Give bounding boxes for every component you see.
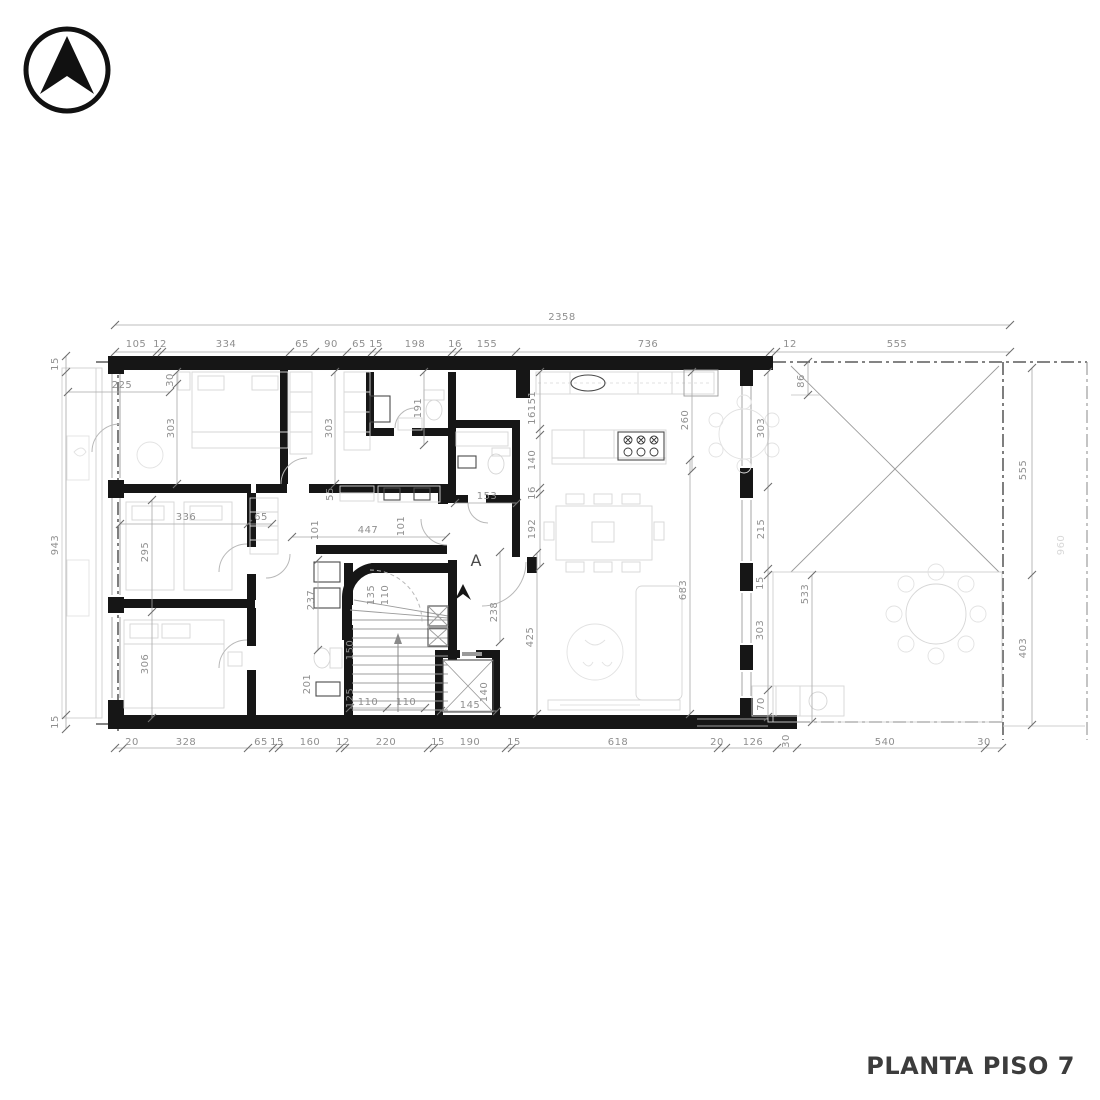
dim-label: 215 [756,519,767,540]
dim-label: 192 [527,519,538,540]
dim-label: 260 [680,410,691,431]
dim-label: 328 [176,737,197,748]
dim-label: 12 [153,339,167,350]
dim-label: 15 [755,576,766,590]
left-windows [112,374,120,698]
dim-label: 12 [336,737,350,748]
dim-label: 533 [800,584,811,605]
dim-label: 295 [140,542,151,563]
floor-plan: A [62,356,1087,740]
dim-label: 238 [489,602,500,623]
dim-label: 201 [302,674,313,695]
dim-label: 110 [358,697,379,708]
dining-table [544,494,664,572]
dim-label: 126 [743,737,764,748]
dim-label: 191 [413,398,424,419]
dim-label: 86 [796,374,807,388]
dim-label: 403 [1018,638,1029,659]
dim-label: 20 [125,737,139,748]
dim-label: 15 [369,339,383,350]
dim-label: 150 [345,640,356,661]
dim-label: 90 [324,339,338,350]
dim-label: 736 [638,339,659,350]
dim-label: 110 [380,585,391,606]
dim-label: 65 [254,512,268,523]
dim-label: 65 [352,339,366,350]
plant-icon [74,448,86,456]
dim-label: 153 [477,491,498,502]
dim-label: 140 [479,682,490,703]
dim-label: 943 [50,535,61,556]
dim-label: 555 [887,339,908,350]
dimensions: 2358 105 12 334 65 90 65 15 198 16 155 7… [50,312,1067,752]
dim-label: 237 [306,590,317,611]
dim-label: 15 [431,737,445,748]
dim-label: 336 [176,512,197,523]
dim-label: 105 [126,339,147,350]
entry-arrow-icon [455,584,471,600]
dim-label: 30 [781,734,792,748]
dim-label: 618 [608,737,629,748]
dim-label: 225 [112,380,133,391]
dim-label: 125 [345,688,356,709]
dim-label: 683 [678,580,689,601]
dim-label: 220 [376,737,397,748]
dim-label-faint: 960 [1056,535,1067,556]
dim-label: 447 [358,525,379,536]
bottom-wall [113,715,797,729]
kitchen-island [552,430,666,464]
dim-label: 425 [525,627,536,648]
dim-label: 303 [755,620,766,641]
top-dimension-chain: 105 12 334 65 90 65 15 198 16 155 736 12… [126,339,908,350]
bottom-dimension-chain: 20 328 65 15 160 12 220 15 190 15 618 20… [125,734,991,748]
dim-label: 190 [460,737,481,748]
terrace-chairs [886,564,986,664]
dim-label: 30 [977,737,991,748]
right-dimension-chain: 555 403 [1018,460,1029,659]
dim-label: 540 [875,737,896,748]
dim-label: 16 [527,486,538,500]
dim-label: 30 [165,373,176,387]
dim-label: 16 [527,411,538,425]
section-label-a: A [471,551,482,570]
left-balcony [62,368,102,718]
dim-label: 306 [140,654,151,675]
dim-label: 15 [507,737,521,748]
dim-label: 303 [166,418,177,439]
dim-label: 65 [295,339,309,350]
top-wall [113,356,773,370]
dim-label: 55 [325,487,336,501]
dim-label: 555 [1018,460,1029,481]
dim-label: 151 [527,391,538,412]
dim-label: 20 [710,737,724,748]
dim-label: 303 [756,418,767,439]
dim-label: 160 [300,737,321,748]
stove-burners [624,436,658,456]
double-height-void [791,366,999,572]
dim-label: 140 [527,450,538,471]
dim-label: 135 [366,585,377,606]
dim-label: 110 [396,697,417,708]
staircase [350,570,448,712]
dim-label: 145 [460,700,481,711]
dim-label: 101 [310,520,321,541]
dim-label: 101 [396,516,407,537]
dim-label: 334 [216,339,237,350]
dim-label: 2358 [548,312,575,323]
dim-label: 12 [783,339,797,350]
dim-label: 15 [270,737,284,748]
terrace [752,564,1002,722]
dim-label: 198 [405,339,426,350]
dim-label: 155 [477,339,498,350]
bathroom-2-fixtures [456,432,510,474]
living-room-furniture [548,586,682,710]
door-swings [92,408,526,668]
left-dimension-chain: 15 943 15 [50,357,61,729]
stair-direction-arrow [394,633,402,644]
dim-label: 70 [756,697,767,711]
drawing-title: PLANTA PISO 7 [866,1052,1075,1080]
dim-label: 16 [448,339,462,350]
round-table [709,395,779,473]
dim-label: 15 [50,715,61,729]
dim-label: 15 [50,357,61,371]
property-lines [96,358,1087,740]
dim-label: 65 [254,737,268,748]
left-property-stubs [96,362,118,724]
floor-plan-canvas: A 2358 105 12 334 65 90 65 15 198 16 155… [0,0,1100,1100]
north-arrow-icon [26,29,108,111]
dim-label: 303 [324,418,335,439]
